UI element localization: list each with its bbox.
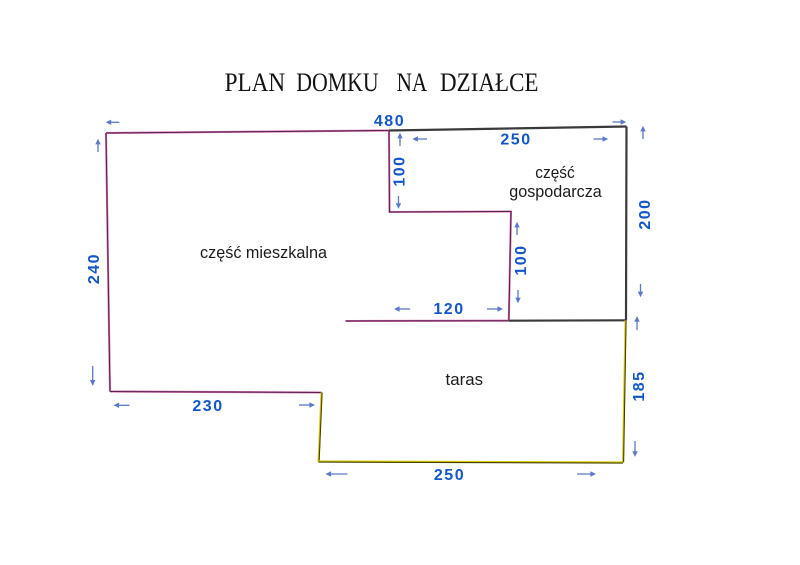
svg-text:DZIAŁCE: DZIAŁCE	[440, 68, 539, 97]
svg-text:taras: taras	[446, 370, 484, 389]
svg-text:480: 480	[374, 113, 405, 130]
svg-text:240: 240	[86, 253, 103, 284]
svg-text:185: 185	[631, 370, 648, 401]
svg-text:250: 250	[434, 467, 465, 484]
svg-text:DOMKU: DOMKU	[296, 68, 379, 97]
svg-text:100: 100	[392, 155, 409, 186]
svg-text:część: część	[535, 163, 575, 182]
svg-text:250: 250	[500, 132, 531, 149]
svg-text:200: 200	[637, 198, 654, 229]
svg-text:NA: NA	[397, 68, 428, 97]
svg-text:120: 120	[433, 301, 464, 318]
svg-text:gospodarcza: gospodarcza	[509, 182, 602, 201]
svg-text:230: 230	[192, 398, 223, 415]
svg-text:PLAN: PLAN	[225, 68, 286, 97]
svg-text:część mieszkalna: część mieszkalna	[200, 243, 328, 262]
svg-text:100: 100	[513, 244, 530, 275]
